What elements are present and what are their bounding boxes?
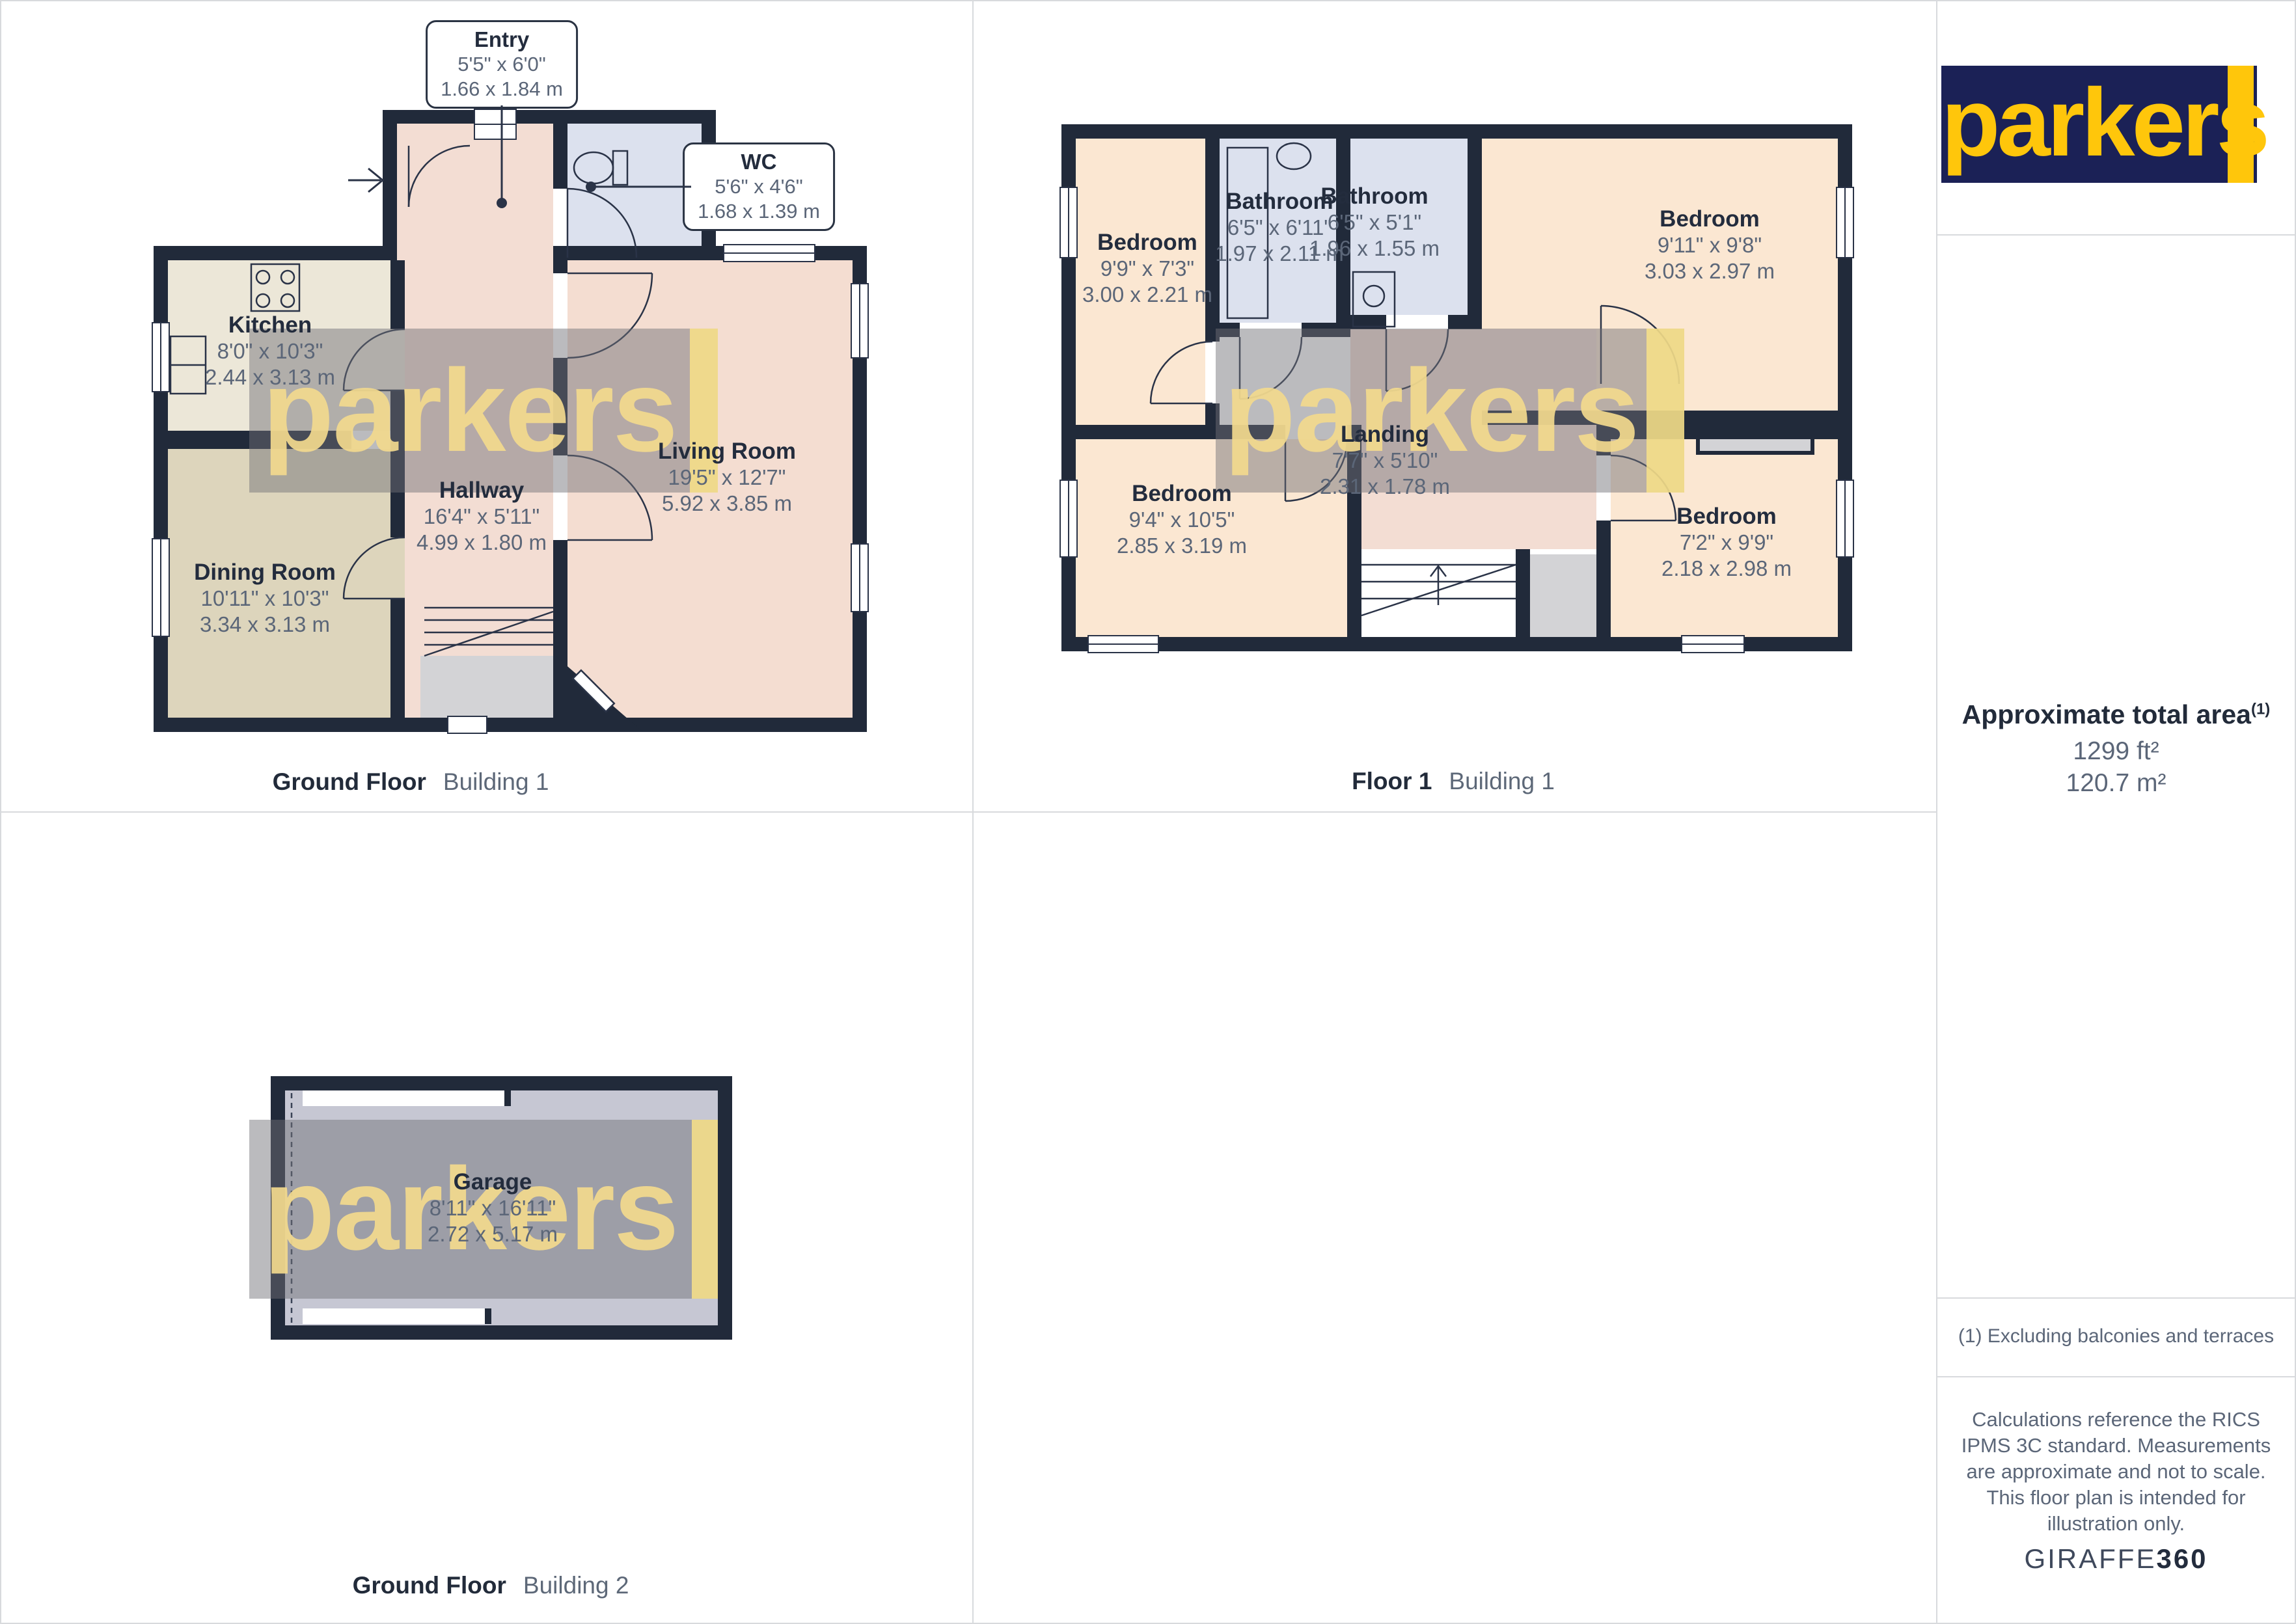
room-label-bedroom-br: Bedroom 7'2" x 9'9" 2.18 x 2.98 m [1661,504,1792,582]
disclaimer: Calculations reference the RICS IPMS 3C … [1959,1407,2273,1537]
parkers-logo-text: parkers [1941,66,2228,183]
wall [1061,124,1852,139]
wall [383,110,397,260]
room-dim-metric: 2.72 x 5.17 m [428,1221,558,1247]
gf-storage-floor [420,656,553,718]
room-label-bedroom-tl: Bedroom 9'9" x 7'3" 3.00 x 2.21 m [1082,230,1212,308]
room-label-bedroom-bl: Bedroom 9'4" x 10'5" 2.85 x 3.19 m [1117,481,1247,559]
room-dim-imperial: 9'11" x 9'8" [1645,232,1775,258]
room-name: Kitchen [205,312,335,338]
room-name: Dining Room [194,560,336,586]
room-label-entry: Entry 5'5" x 6'0" 1.66 x 1.84 m [426,20,578,109]
area-title-superscript: (1) [2251,700,2270,718]
room-label-living: Living Room 19'5" x 12'7" 5.92 x 3.85 m [658,439,796,517]
parkers-logo-bar [2228,66,2254,183]
caption-ground-floor-b1: Ground Floor Building 1 [273,768,549,796]
giraffe-360: 360 [2156,1543,2207,1574]
room-label-bathroom-2: Bathroom 6'5" x 5'1" 1.96 x 1.55 m [1309,183,1440,262]
parkers-logo: parkers [1941,66,2257,183]
watermark-bar [692,1120,718,1299]
room-dim-imperial: 9'9" x 7'3" [1082,256,1212,282]
wall [383,110,716,124]
caption-ground-floor-b2: Ground Floor Building 2 [353,1572,629,1599]
room-name: Living Room [658,439,796,465]
wall [271,1325,732,1340]
room-name: Bedroom [1117,481,1247,507]
sidebar-divider-2 [1936,1297,2296,1299]
wall [154,246,397,260]
wall [154,718,867,732]
room-name: Entry [441,27,563,52]
room-dim-metric: 5.92 x 3.85 m [658,491,796,517]
room-name: Bedroom [1645,206,1775,232]
room-dim-metric: 3.34 x 3.13 m [194,612,336,638]
giraffe-text: GIRAFFE [2024,1543,2156,1574]
wall [390,260,405,329]
room-dim-metric: 2.18 x 2.98 m [1661,556,1792,582]
room-name: Bedroom [1082,230,1212,256]
caption-floor: Ground Floor [353,1572,506,1599]
wall [1061,637,1852,651]
room-label-garage: Garage 8'11" x 16'11" 2.72 x 5.17 m [428,1169,558,1247]
wall [1596,521,1611,637]
caption-building: Building 1 [1449,768,1555,795]
room-name: Bedroom [1661,504,1792,530]
sidebar-divider-3 [1936,1376,2296,1377]
area-title-text: Approximate total area [1962,699,2251,729]
room-dim-metric: 1.68 x 1.39 m [698,199,820,224]
room-dim-imperial: 7'2" x 9'9" [1661,530,1792,556]
room-dim-imperial: 8'11" x 16'11" [428,1195,558,1221]
room-dim-metric: 1.96 x 1.55 m [1309,236,1440,262]
room-label-kitchen: Kitchen 8'0" x 10'3" 2.44 x 3.13 m [205,312,335,390]
room-name: WC [698,150,820,174]
area-title: Approximate total area(1) [1936,699,2296,730]
divider-vertical-2 [1936,0,1937,1624]
wall [1350,315,1386,329]
room-dim-imperial: 5'5" x 6'0" [441,52,563,77]
room-label-landing: Landing 7'7" x 5'10" 2.31 x 1.78 m [1320,422,1450,500]
wall [1061,124,1076,651]
room-dim-metric: 3.00 x 2.21 m [1082,282,1212,308]
sidebar-divider-1 [1936,234,2296,236]
wall [271,1076,732,1090]
caption-floor: Floor 1 [1352,768,1432,795]
wall [553,260,567,273]
room-name: Landing [1320,422,1450,448]
watermark-bar [1647,329,1684,493]
wall [853,246,867,732]
room-dim-imperial: 19'5" x 12'7" [658,465,796,491]
wall [154,246,168,732]
room-dim-metric: 2.85 x 3.19 m [1117,533,1247,559]
area-m: 120.7 m² [1936,769,2296,798]
room-label-dining: Dining Room 10'11" x 10'3" 3.34 x 3.13 m [194,560,336,638]
area-ft: 1299 ft² [1936,737,2296,766]
wall [1516,549,1530,637]
room-dim-imperial: 6'5" x 5'1" [1309,210,1440,236]
caption-floor: Ground Floor [273,768,426,796]
wall [1838,124,1852,651]
room-label-hallway: Hallway 16'4" x 5'11" 4.99 x 1.80 m [417,478,547,556]
caption-floor1-b1: Floor 1 Building 1 [1352,768,1555,795]
room-label-wc: WC 5'6" x 4'6" 1.68 x 1.39 m [683,142,835,231]
wall [1448,315,1482,329]
f1-closet-a [1530,554,1596,637]
divider-horizontal-1 [0,811,1936,813]
wall [553,540,567,718]
room-name: Garage [428,1169,558,1195]
room-dim-imperial: 16'4" x 5'11" [417,504,547,530]
room-dim-metric: 2.31 x 1.78 m [1320,474,1450,500]
caption-building: Building 1 [443,768,549,796]
wall [718,1076,732,1340]
floorplan-page: parkers parkers parkers Kitchen 8'0" x 1… [0,0,2296,1624]
room-dim-imperial: 10'11" x 10'3" [194,586,336,612]
room-name: Bathroom [1309,183,1440,210]
caption-building: Building 2 [523,1572,629,1599]
room-name: Hallway [417,478,547,504]
room-dim-metric: 3.03 x 2.97 m [1645,258,1775,284]
room-dim-imperial: 5'6" x 4'6" [698,174,820,199]
wc-floor [567,124,702,246]
room-dim-imperial: 7'7" x 5'10" [1320,448,1450,474]
wall [553,124,567,189]
giraffe360-brand: GIRAFFE360 [1936,1543,2296,1575]
room-dim-metric: 1.66 x 1.84 m [441,77,563,101]
room-dim-imperial: 9'4" x 10'5" [1117,507,1247,533]
footnote: (1) Excluding balconies and terraces [1936,1325,2296,1347]
entry-floor [397,124,553,260]
room-dim-metric: 4.99 x 1.80 m [417,530,547,556]
stairs-floor [1361,549,1516,637]
room-dim-metric: 2.44 x 3.13 m [205,364,335,390]
room-label-bedroom-tr: Bedroom 9'11" x 9'8" 3.03 x 2.97 m [1645,206,1775,284]
wall [390,599,405,718]
room-dim-imperial: 8'0" x 10'3" [205,338,335,364]
wall [1468,139,1482,329]
wall [553,246,867,260]
